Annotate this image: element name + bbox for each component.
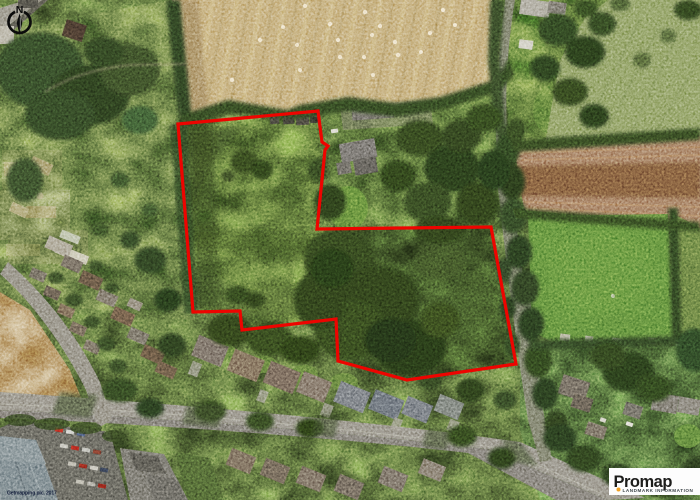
svg-text:Getmapping plc. 2017: Getmapping plc. 2017 [7,491,57,497]
svg-text:LANDMARK INFORMATION: LANDMARK INFORMATION [623,488,694,493]
